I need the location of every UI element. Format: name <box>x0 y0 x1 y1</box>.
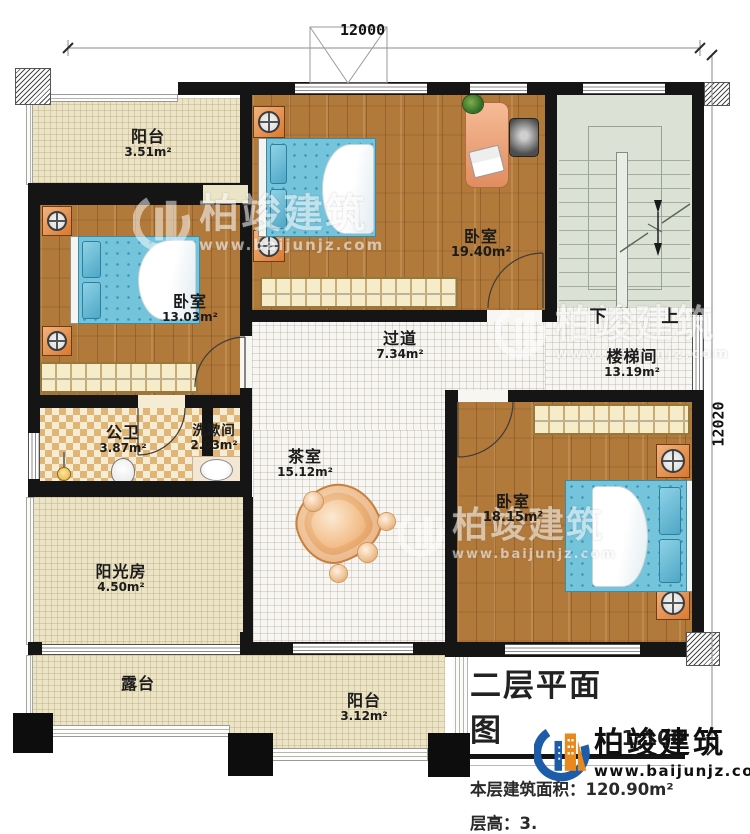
floor-height-label: 层高： <box>470 814 520 833</box>
room-name: 洗漱间 <box>190 424 237 439</box>
window <box>470 83 527 94</box>
hatched-pier <box>704 82 730 106</box>
wall-bathroom-bottom <box>28 481 252 497</box>
room-area: 4.50m² <box>95 581 146 594</box>
window <box>505 644 640 655</box>
wardrobe <box>260 277 458 308</box>
bed-pillow <box>270 144 287 184</box>
room-name: 公卫 <box>99 424 146 442</box>
room-label-stairwell: 楼梯间 13.19m² <box>604 348 660 379</box>
balcony-railing <box>26 101 33 185</box>
wall-bedroom-right-left <box>445 390 457 657</box>
dimension-line-top <box>63 40 705 56</box>
room-label-washroom: 洗漱间 2.03m² <box>190 424 237 453</box>
wardrobe <box>40 362 198 393</box>
door-opening <box>138 395 185 408</box>
dimension-top: 12000 <box>340 21 385 39</box>
room-area: 19.40m² <box>451 246 511 261</box>
hatched-pier <box>686 632 720 666</box>
brand-name: 柏竣建筑 <box>594 729 750 759</box>
floor-corridor-east <box>445 318 545 390</box>
bed-blanket <box>592 486 648 587</box>
wall-right-outer <box>692 82 704 315</box>
room-area: 13.03m² <box>162 311 218 324</box>
floor-area-value: 120.90m² <box>586 780 674 799</box>
column <box>228 733 273 776</box>
room-name: 卧室 <box>451 228 511 246</box>
wall-stub <box>240 632 253 655</box>
bed-pillow <box>270 189 287 229</box>
nightstand <box>656 444 690 478</box>
floor-area-label: 本层建筑面积： <box>470 780 586 799</box>
pebble <box>330 565 347 582</box>
room-label-bedroom-right: 卧室 18.15m² <box>483 493 543 525</box>
pebble <box>304 492 323 511</box>
nightstand-ornament-icon <box>661 591 685 615</box>
nightstand-ornament-icon <box>661 449 685 473</box>
dimension-right: 12020 <box>710 401 728 446</box>
bed-pillow <box>82 241 101 278</box>
room-area: 3.12m² <box>340 710 387 723</box>
room-area: 13.19m² <box>604 366 660 379</box>
floor-height-line: 层高：3. <box>470 810 685 834</box>
pebble <box>358 543 377 562</box>
stair-center-rail <box>616 152 628 308</box>
door-opening <box>458 390 508 402</box>
brand-logo: 柏竣建筑 www.baijunjz.com <box>534 726 750 782</box>
desk-chair <box>509 118 539 157</box>
pebble <box>378 513 395 530</box>
window <box>28 433 40 479</box>
window <box>295 83 427 94</box>
sunroom-glass <box>30 644 243 655</box>
wall-stub <box>28 642 42 655</box>
hatched-pier <box>15 68 51 105</box>
room-area: 15.12m² <box>277 466 333 479</box>
column <box>428 733 470 777</box>
room-area: 18.15m² <box>483 511 543 526</box>
wall-balcony-right <box>240 95 252 187</box>
room-label-terrace: 露台 <box>121 675 155 693</box>
wall-stairwell-left <box>545 82 557 310</box>
wall-right-outer <box>692 390 704 657</box>
window <box>583 83 665 94</box>
bed-pillow <box>659 539 681 583</box>
balcony-railing <box>272 748 428 761</box>
brand-logo-icon <box>534 726 590 782</box>
room-label-tearoom: 茶室 15.12m² <box>277 448 333 479</box>
room-label-balcony-top: 阳台 3.51m² <box>124 128 171 159</box>
room-name: 阳台 <box>340 692 387 710</box>
floor-drain <box>57 467 71 481</box>
room-name: 茶室 <box>277 448 333 466</box>
bed-pillow <box>659 487 681 535</box>
stair-up-label: 上 <box>662 302 679 327</box>
bed-pillow <box>82 282 101 319</box>
room-name: 露台 <box>121 675 155 693</box>
room-name: 阳光房 <box>95 563 146 581</box>
sliding-door <box>293 643 413 654</box>
room-label-sunroom: 阳光房 4.50m² <box>95 563 146 594</box>
room-area: 3.87m² <box>99 442 146 455</box>
room-area: 3.51m² <box>124 146 171 159</box>
room-label-bedroom-top: 卧室 19.40m² <box>451 228 511 260</box>
door-opening <box>203 185 248 203</box>
room-label-bathroom: 公卫 3.87m² <box>99 424 146 455</box>
nightstand-ornament-icon <box>258 235 280 257</box>
nightstand-ornament-icon <box>47 211 67 231</box>
column <box>13 713 53 753</box>
balcony-railing <box>30 94 178 102</box>
room-name: 卧室 <box>483 493 543 511</box>
room-label-corridor: 过道 7.34m² <box>376 330 423 361</box>
plant <box>463 95 483 113</box>
nightstand-ornament-icon <box>258 111 280 133</box>
nightstand-ornament-icon <box>47 331 67 351</box>
nightstand <box>42 326 72 356</box>
sunroom-glass-side <box>26 497 34 645</box>
sink <box>200 459 233 481</box>
terrace-railing <box>32 725 230 737</box>
room-name: 卧室 <box>162 293 218 311</box>
door-opening <box>487 310 542 322</box>
room-name: 过道 <box>376 330 423 348</box>
stair-down-label: 下 <box>590 302 607 327</box>
floor-plan: 柏竣建筑 www.baijunjz.com 柏竣建筑 www.baijunjz.… <box>0 0 750 795</box>
room-name: 楼梯间 <box>604 348 660 366</box>
wardrobe <box>533 404 690 435</box>
room-name: 阳台 <box>124 128 171 146</box>
nightstand <box>253 106 285 138</box>
room-area: 7.34m² <box>376 348 423 361</box>
bed-blanket <box>322 144 374 234</box>
floor-height-value: 3. <box>520 814 538 833</box>
room-area: 2.03m² <box>190 439 237 452</box>
brand-website: www.baijunjz.com <box>594 764 750 779</box>
window <box>692 315 704 390</box>
nightstand <box>42 206 72 236</box>
room-label-bedroom-left: 卧室 13.03m² <box>162 293 218 324</box>
room-label-balcony-bottom: 阳台 3.12m² <box>340 692 387 723</box>
door-opening <box>240 336 252 388</box>
